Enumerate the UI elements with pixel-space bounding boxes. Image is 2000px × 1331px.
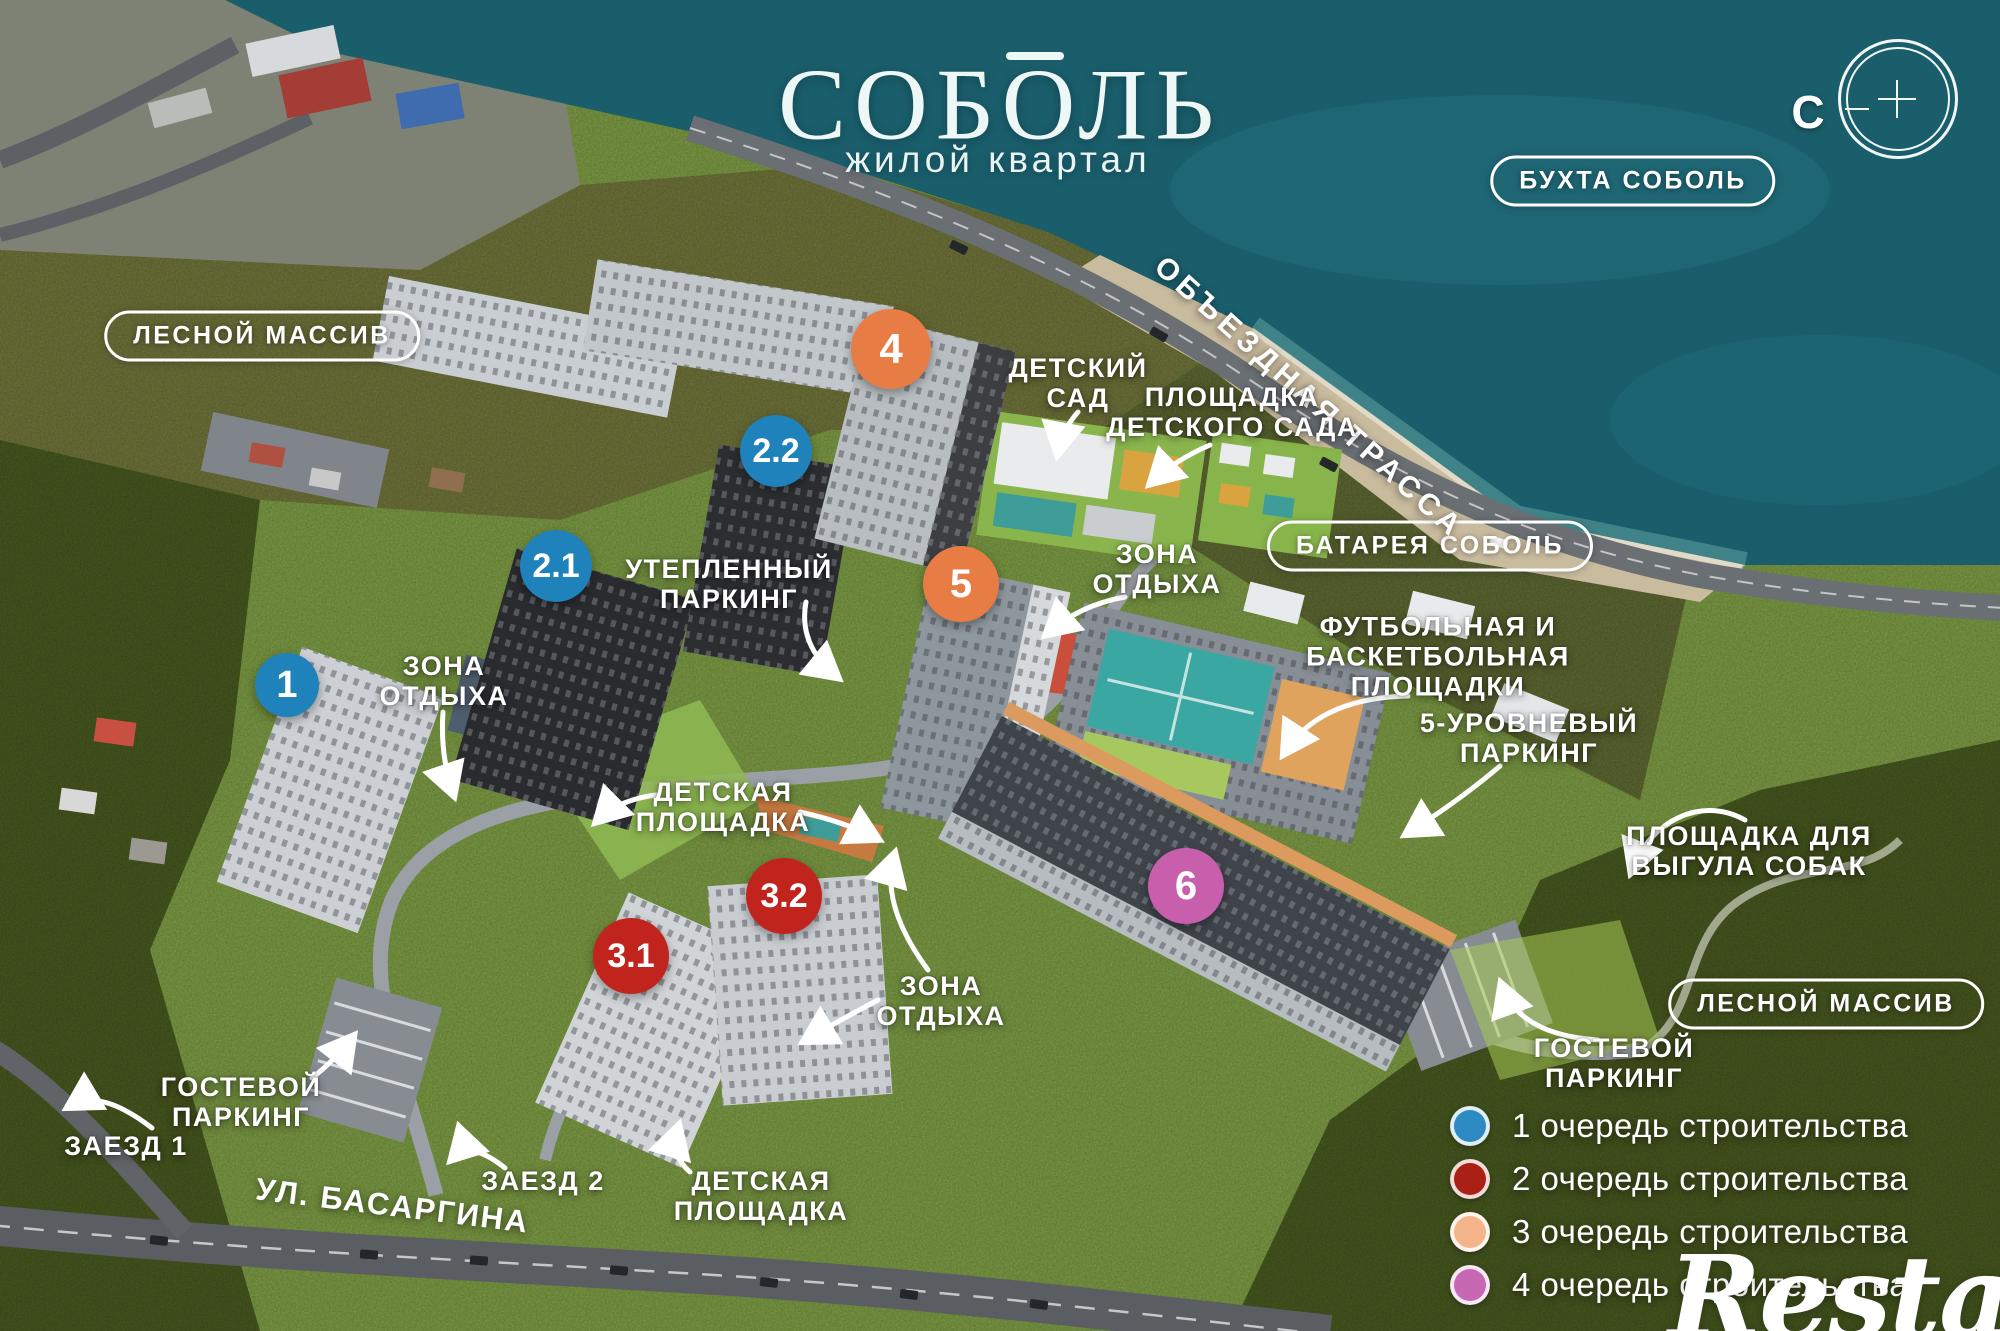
label-ploshchadka-detskogo-sada: ПЛОЩАДКАДЕТСКОГО САДА [1106, 382, 1358, 442]
label-zona-otdyha-top: ЗОНАОТДЫХА [1093, 539, 1222, 599]
label-parking-5-level: 5-УРОВНЕВЫЙПАРКИНГ [1420, 708, 1638, 768]
legend-dot-phase-3 [1450, 1212, 1490, 1252]
marker-building-5: 5 [923, 546, 999, 622]
title-macron [1006, 52, 1064, 60]
label-futbolnaya-basketbolnaya: ФУТБОЛЬНАЯ ИБАСКЕТБОЛЬНАЯПЛОЩАДКИ [1306, 612, 1570, 703]
marker-building-1: 1 [255, 653, 319, 717]
marker-building-2-1: 2.1 [520, 530, 592, 602]
masterplan-map: СОБОЛЬ жилой квартал С ЛЕСНОЙ МАССИВ БУХ… [0, 0, 2000, 1331]
marker-building-3-2: 3.2 [746, 858, 822, 934]
label-zona-otdyha-bottom: ЗОНАОТДЫХА [877, 971, 1006, 1031]
legend-item-phase-2: 2 очередь строительства [1450, 1159, 1908, 1199]
restate-watermark: Restate [1668, 1232, 2000, 1331]
legend-dot-phase-1 [1450, 1106, 1490, 1146]
label-uteplennyy-parking: УТЕПЛЕННЫЙПАРКИНГ [625, 554, 833, 614]
project-subtitle: жилой квартал [845, 139, 1150, 181]
marker-building-6: 6 [1148, 848, 1224, 924]
marker-building-2-2: 2.2 [740, 415, 812, 487]
marker-building-4: 4 [851, 309, 931, 389]
compass-icon [1838, 39, 1958, 159]
label-detskaya-ploshchadka-mid: ДЕТСКАЯПЛОЩАДКА [636, 777, 811, 837]
badge-lesnoy-massiv-bottom: ЛЕСНОЙ МАССИВ [1668, 979, 1984, 1030]
label-gostevoy-parking-left: ГОСТЕВОЙПАРКИНГ [161, 1072, 322, 1132]
label-zona-otdyha-left: ЗОНАОТДЫХА [380, 651, 509, 711]
legend-dot-phase-2 [1450, 1159, 1490, 1199]
label-ploshchadka-vygula-sobak: ПЛОЩАДКА ДЛЯВЫГУЛА СОБАК [1626, 821, 1872, 881]
marker-building-3-1: 3.1 [593, 918, 669, 994]
label-gostevoy-parking-right: ГОСТЕВОЙПАРКИНГ [1534, 1033, 1695, 1093]
label-detskaya-ploshchadka-bottom: ДЕТСКАЯПЛОЩАДКА [674, 1166, 849, 1226]
badge-lesnoy-massiv-top: ЛЕСНОЙ МАССИВ [104, 311, 420, 362]
badge-buhta-sobol: БУХТА СОБОЛЬ [1490, 156, 1775, 207]
legend-item-phase-1: 1 очередь строительства [1450, 1106, 1908, 1146]
compass-north-label: С [1791, 85, 1824, 139]
label-zaezd-2: ЗАЕЗД 2 [481, 1166, 605, 1196]
label-zaezd-1: ЗАЕЗД 1 [64, 1131, 188, 1161]
legend-dot-phase-4 [1450, 1265, 1490, 1305]
